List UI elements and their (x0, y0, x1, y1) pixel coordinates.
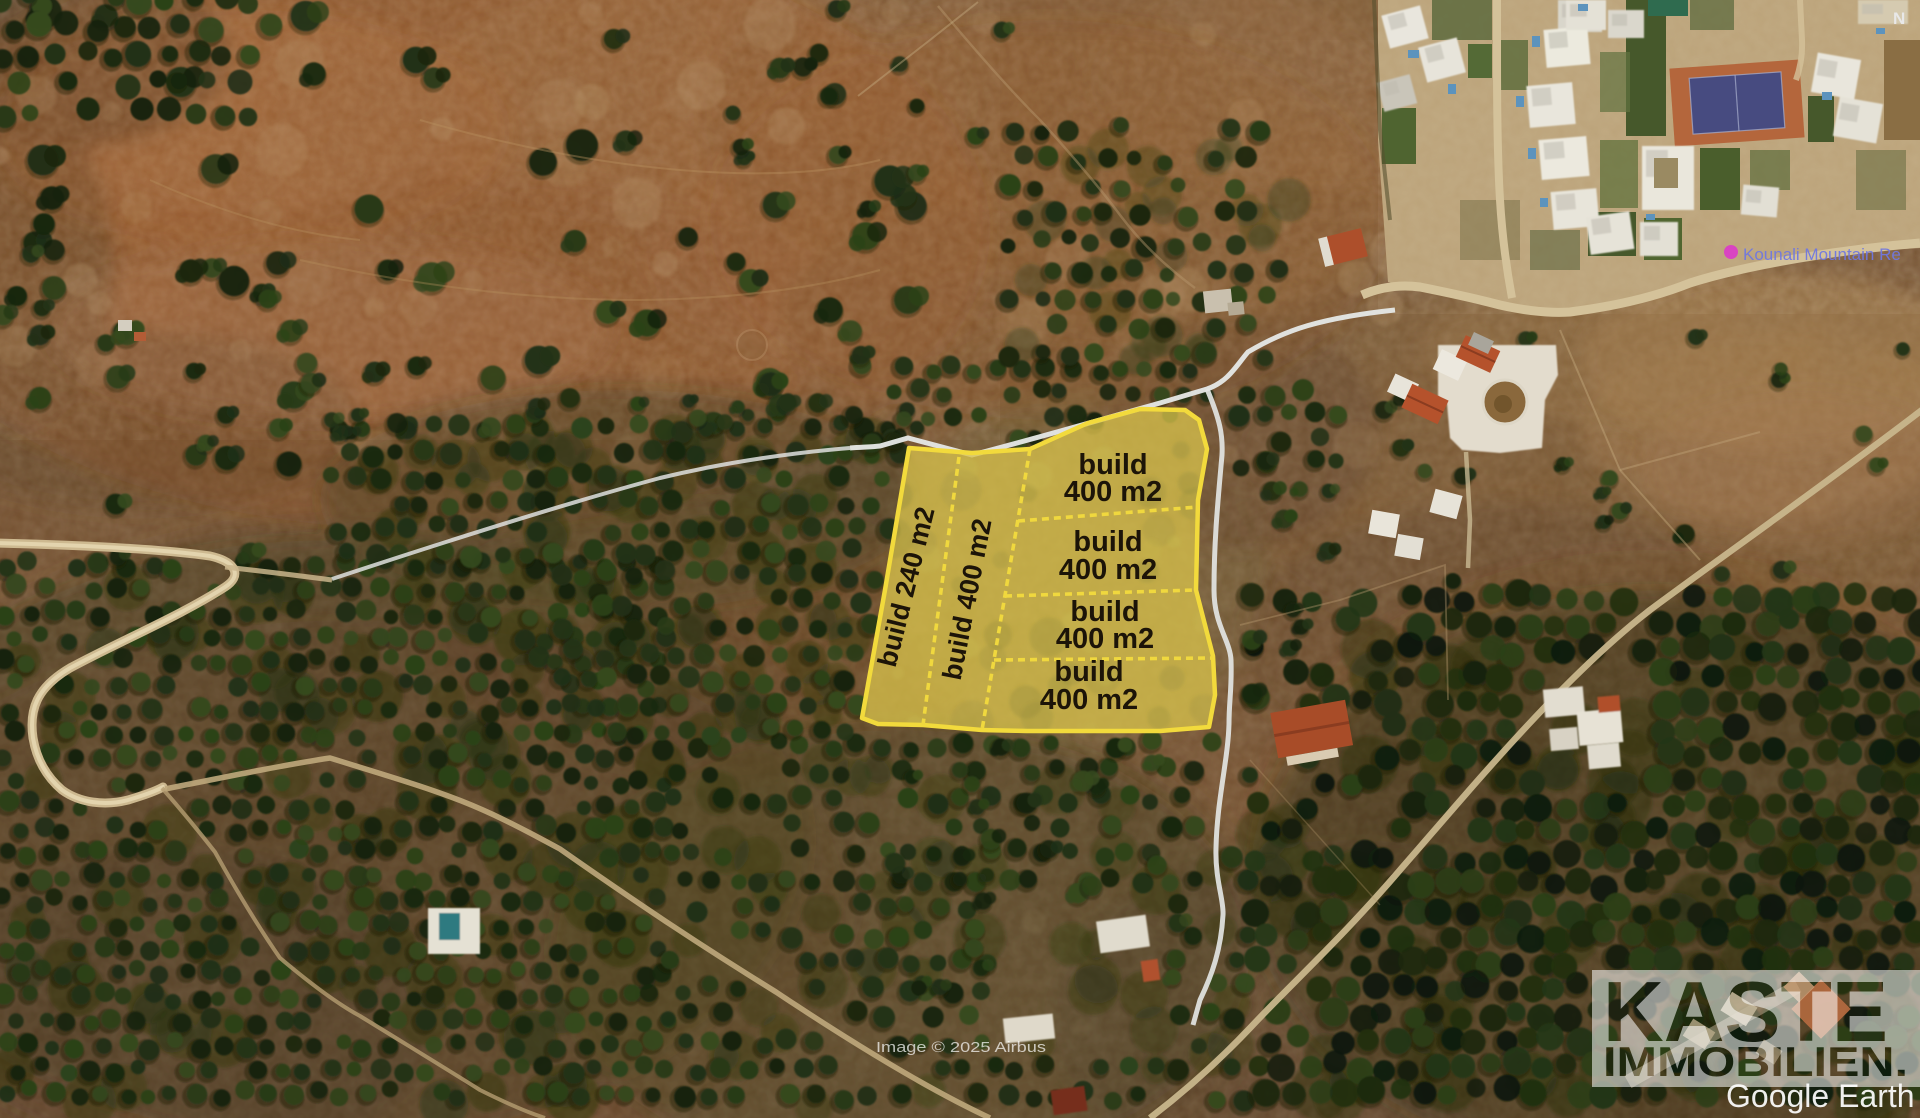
svg-text:400 m2: 400 m2 (1040, 684, 1138, 716)
svg-text:400 m2: 400 m2 (1064, 476, 1162, 508)
svg-text:400 m2: 400 m2 (1059, 554, 1157, 586)
svg-text:Google Earth: Google Earth (1726, 1078, 1915, 1114)
svg-text:Kounali Mountain Re: Kounali Mountain Re (1743, 245, 1901, 264)
svg-text:N: N (1893, 9, 1905, 28)
svg-text:400 m2: 400 m2 (1056, 623, 1154, 655)
svg-text:Image © 2025 Airbus: Image © 2025 Airbus (876, 1039, 1046, 1056)
